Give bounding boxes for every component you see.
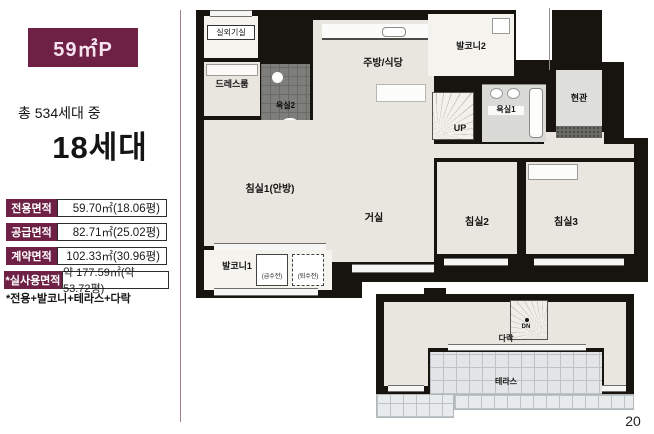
terrace-apron-left	[376, 394, 454, 418]
dining-table	[376, 84, 426, 102]
drain-valve-label: (퇴수전)	[292, 274, 324, 281]
room-bedroom2	[437, 162, 517, 254]
area-row-label-supply: 공급면적	[6, 223, 57, 241]
corridor	[434, 144, 634, 158]
kitchen-label: 주방/식당	[340, 58, 426, 69]
dimension-line	[549, 8, 550, 70]
terrace-floor	[430, 352, 602, 394]
terrace-apron-right	[454, 394, 634, 410]
living-window	[352, 264, 434, 273]
total-households-line: 총 534세대 중	[18, 106, 101, 121]
terrace-label: 테라스	[484, 378, 528, 387]
balcony1-window	[214, 288, 318, 296]
attic-left-wing	[384, 348, 428, 386]
attic-label: 다락	[488, 335, 524, 344]
supply-valve-label: (급수전)	[256, 274, 288, 281]
bath1-sink-2	[507, 88, 520, 99]
bath2-sink	[272, 72, 283, 83]
plan-cutout-top	[516, 10, 552, 60]
bath1-tub	[529, 88, 543, 138]
bath1-label: 욕실1	[488, 106, 524, 115]
balcony2-unit	[492, 18, 510, 34]
area-footnote: *전용+발코니+테라스+다락	[6, 293, 131, 305]
attic-top-stub	[424, 288, 446, 296]
kitchen-sink	[382, 27, 406, 37]
area-row-value-exclusive: 59.70㎡(18.06평)	[57, 199, 167, 217]
area-row-value-contract: 102.33㎡(30.96평)	[57, 247, 167, 265]
balcony1-dryer-box	[292, 254, 324, 286]
stair-down	[510, 300, 548, 340]
stair-down-label: DN	[516, 324, 536, 331]
sidebar-divider	[180, 10, 181, 422]
attic-terrace-window	[448, 344, 586, 351]
attic-rightwing-window	[602, 385, 626, 392]
area-row-value-actual-use: 약 177.59㎡(약 53.72평)	[62, 271, 169, 289]
bath1-sink-1	[490, 88, 503, 99]
plan-cutout-right	[624, 62, 648, 138]
entrance-label: 현관	[556, 94, 602, 104]
entrance-mat	[556, 126, 602, 138]
outdoor-unit-label: 실외기실	[207, 25, 255, 40]
living-label: 거실	[344, 213, 404, 224]
bedroom3-window	[534, 258, 624, 266]
bedroom2-label: 침실2	[447, 217, 507, 228]
stair-down-post	[525, 318, 529, 322]
attic-leftwing-window	[388, 385, 424, 392]
area-row-label-actual-use: *실사용면적	[4, 271, 62, 289]
stair-up-label: UP	[446, 124, 474, 134]
attic-right-wing	[604, 348, 626, 386]
unit-type-badge: 59㎡P	[28, 28, 138, 67]
bedroom3-closet	[528, 164, 578, 180]
bedroom2-window	[444, 258, 508, 266]
page-number: 20	[618, 414, 648, 429]
area-row-label-contract: 계약면적	[6, 247, 57, 265]
plan-cutout-topright	[602, 10, 648, 62]
balcony2-label: 발코니2	[428, 42, 514, 52]
dress-wardrobe	[206, 64, 258, 76]
bath2-label: 욕실2	[261, 102, 310, 111]
area-row-label-exclusive: 전용면적	[6, 199, 57, 217]
bedroom1-label: 침실1(안방)	[210, 184, 330, 195]
unit-count: 18세대	[40, 131, 160, 165]
outdoor-unit-window	[210, 10, 252, 17]
area-row-value-supply: 82.71㎡(25.02평)	[57, 223, 167, 241]
balcony1-washer-box	[256, 254, 288, 286]
dress-room-label: 드레스룸	[204, 80, 260, 90]
room-bedroom1	[204, 120, 342, 246]
bedroom3-label: 침실3	[536, 217, 596, 228]
